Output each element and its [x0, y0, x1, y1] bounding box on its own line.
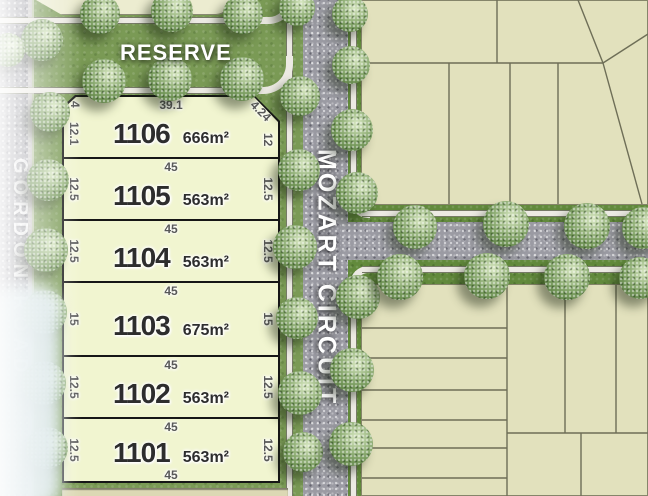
lot-label: 1102 563m²: [113, 378, 229, 410]
lot-number: 1101: [113, 437, 170, 469]
lot-1104[interactable]: 45 12.5 12.5 1104 563m²: [64, 221, 278, 281]
dim-right: 15: [262, 312, 274, 325]
dim-left: 12.5: [68, 375, 80, 398]
footpath-mozart-east-lower: [350, 278, 357, 496]
lot-1102[interactable]: 45 12.5 12.5 1102 563m²: [64, 357, 278, 417]
dim-top: 45: [64, 359, 278, 371]
lot-area: 563m²: [183, 192, 229, 210]
dim-top: 45: [64, 285, 278, 297]
lot-label: 1104 563m²: [113, 242, 229, 274]
lot-1106[interactable]: 39.1 4 12.1 4.24 12 1106 666m²: [64, 97, 278, 157]
neighbour-block-top-right: [361, 0, 648, 205]
lot-1105[interactable]: 45 12.5 12.5 1105 563m²: [64, 159, 278, 219]
lot-area: 563m²: [183, 449, 229, 467]
lot-1103[interactable]: 45 15 15 1103 675m²: [64, 283, 278, 355]
footpath-mozart-east-upper: [350, 0, 357, 206]
reserve-label: RESERVE: [120, 42, 232, 64]
mozart-circuit-label: MOZART CIRCUIT: [311, 92, 341, 464]
lot-area: 666m²: [183, 130, 229, 148]
lot-area: 563m²: [183, 254, 229, 272]
lot-number: 1105: [113, 180, 170, 212]
dim-bottom: 45: [64, 469, 278, 481]
lot-number: 1103: [113, 310, 170, 342]
dim-right: 12: [262, 133, 274, 146]
lot-label: 1106 666m²: [113, 118, 229, 150]
dim-right: 12.5: [262, 438, 274, 461]
side-street-road-surface: [340, 222, 648, 260]
dim-left: 15: [68, 312, 80, 325]
dim-top: 39.1: [64, 99, 278, 111]
neighbour-lot-top: [36, 0, 230, 15]
subdivision-plan-map: 39.1 4 12.1 4.24 12 1106 666m² 45 12.5 1…: [0, 0, 648, 496]
dim-left: 12.1: [68, 122, 80, 145]
lot-area: 675m²: [183, 322, 229, 340]
dim-right: 12.5: [262, 177, 274, 200]
dim-right: 12.5: [262, 239, 274, 262]
lot-1101[interactable]: 45 12.5 12.5 45 1101 563m²: [64, 419, 278, 481]
featured-lots-panel: 39.1 4 12.1 4.24 12 1106 666m² 45 12.5 1…: [62, 95, 280, 483]
footpath-reserve-south: [0, 87, 254, 94]
neighbour-block-bottom-right: [361, 284, 648, 496]
lot-label: 1101 563m²: [113, 437, 229, 469]
lot-label: 1105 563m²: [113, 180, 229, 212]
lot-number: 1104: [113, 242, 170, 274]
footpath-side-street-north: [362, 210, 648, 217]
gordon-road-label: GORDON ROAD: [4, 158, 30, 488]
lot-area: 563m²: [183, 390, 229, 408]
footpath-reserve-north: [0, 17, 262, 24]
lot-number: 1102: [113, 378, 170, 410]
lot-label: 1103 675m²: [113, 310, 229, 342]
footpath-side-street-south: [362, 266, 648, 273]
dim-top: 45: [64, 223, 278, 235]
dim-top: 45: [64, 421, 278, 433]
dim-chamfer-left: 4: [69, 101, 81, 108]
featured-lots-inner: 39.1 4 12.1 4.24 12 1106 666m² 45 12.5 1…: [64, 97, 278, 481]
dim-left: 12.5: [68, 177, 80, 200]
dim-right: 12.5: [262, 375, 274, 398]
neighbour-lot-bottom: [62, 488, 288, 496]
lot-number: 1106: [113, 118, 170, 150]
dim-top: 45: [64, 161, 278, 173]
dim-left: 12.5: [68, 239, 80, 262]
dim-left: 12.5: [68, 438, 80, 461]
